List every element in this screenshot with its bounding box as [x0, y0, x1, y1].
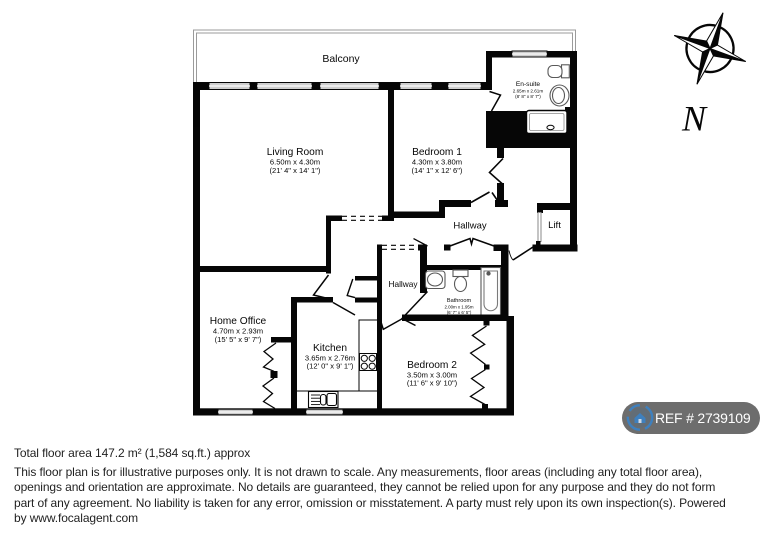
- svg-text:(11' 6" x 9' 10"): (11' 6" x 9' 10"): [407, 379, 458, 388]
- svg-text:Hallway: Hallway: [453, 221, 487, 232]
- svg-text:(21' 4" x 14' 1"): (21' 4" x 14' 1"): [270, 166, 321, 175]
- svg-text:Bedroom 1: Bedroom 1: [412, 147, 462, 158]
- svg-text:(14' 1" x 12' 6"): (14' 1" x 12' 6"): [412, 166, 463, 175]
- svg-text:REF # 2739109: REF # 2739109: [655, 410, 751, 426]
- svg-text:En-suite: En-suite: [516, 81, 541, 88]
- svg-text:Lift: Lift: [548, 220, 561, 231]
- svg-text:Balcony: Balcony: [322, 53, 360, 65]
- svg-text:N: N: [681, 99, 708, 139]
- svg-text:2.65m x 2.61m: 2.65m x 2.61m: [513, 89, 544, 94]
- svg-text:Home Office: Home Office: [210, 316, 267, 327]
- svg-text:Living Room: Living Room: [267, 147, 324, 158]
- svg-text:(15' 5" x 9' 7"): (15' 5" x 9' 7"): [215, 335, 262, 344]
- svg-text:(12' 0" x 9' 1"): (12' 0" x 9' 1"): [307, 362, 354, 371]
- svg-text:Bathroom: Bathroom: [447, 298, 472, 304]
- svg-text:2.00m x 1.95m: 2.00m x 1.95m: [444, 305, 473, 310]
- svg-text:Hallway: Hallway: [388, 279, 418, 289]
- svg-text:(6' 7" x 6' 5"): (6' 7" x 6' 5"): [447, 310, 472, 315]
- svg-text:(8' 8" x 8' 7"): (8' 8" x 8' 7"): [515, 94, 541, 99]
